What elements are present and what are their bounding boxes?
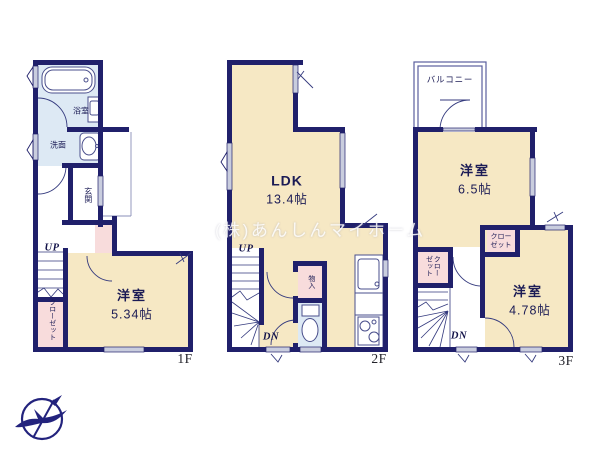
label-room-size-1f: 5.34帖 bbox=[111, 308, 153, 321]
label-closet-left-3f: クローゼット bbox=[424, 255, 439, 280]
entrance-approach-outline bbox=[103, 132, 131, 216]
bird-logo-icon bbox=[12, 392, 70, 444]
label-storage: 物入 bbox=[306, 275, 313, 289]
floor-label-1f: 1F bbox=[177, 352, 192, 366]
kitchen-sink-icon bbox=[358, 259, 379, 289]
label-room2-size-3f: 4.78帖 bbox=[509, 304, 551, 317]
label-closet-1f: クローゼット bbox=[48, 299, 55, 348]
label-up-2f: UP bbox=[239, 243, 254, 254]
label-closet-top-3f: クローゼット bbox=[489, 233, 513, 249]
label-ldk-size: 13.4帖 bbox=[266, 193, 308, 206]
washbasin-icon bbox=[80, 133, 101, 160]
label-room1-3f: 洋室 bbox=[460, 164, 490, 178]
label-up-1f: UP bbox=[45, 242, 60, 253]
label-balcony: バルコニー bbox=[427, 77, 474, 86]
label-room1-size-3f: 6.5帖 bbox=[458, 183, 492, 196]
label-dn-2f: DN bbox=[263, 331, 279, 342]
label-dn-3f: DN bbox=[451, 330, 467, 341]
label-bath: 浴室 bbox=[73, 108, 89, 116]
label-entrance: 玄関 bbox=[82, 187, 90, 203]
toilet-icon bbox=[302, 305, 319, 342]
label-washroom: 洗面 bbox=[50, 142, 66, 150]
company-logo bbox=[12, 392, 70, 444]
label-room-1f: 洋室 bbox=[117, 289, 147, 303]
label-ldk: LDK bbox=[271, 174, 303, 189]
label-room2-3f: 洋室 bbox=[513, 285, 543, 299]
floor-label-3f: 3F bbox=[558, 354, 573, 368]
bathtub-icon bbox=[42, 67, 95, 93]
floorplan-image: 浴室 洗面 玄関 UP クローゼット 洋室 5.34帖 1F LDK 13.4帖… bbox=[0, 0, 600, 449]
floor-label-2f: 2F bbox=[371, 352, 386, 366]
washroom-door-arc bbox=[38, 166, 66, 194]
stove-icon bbox=[358, 317, 379, 345]
watermark-text: (株)あんしんマイホーム bbox=[215, 216, 426, 241]
